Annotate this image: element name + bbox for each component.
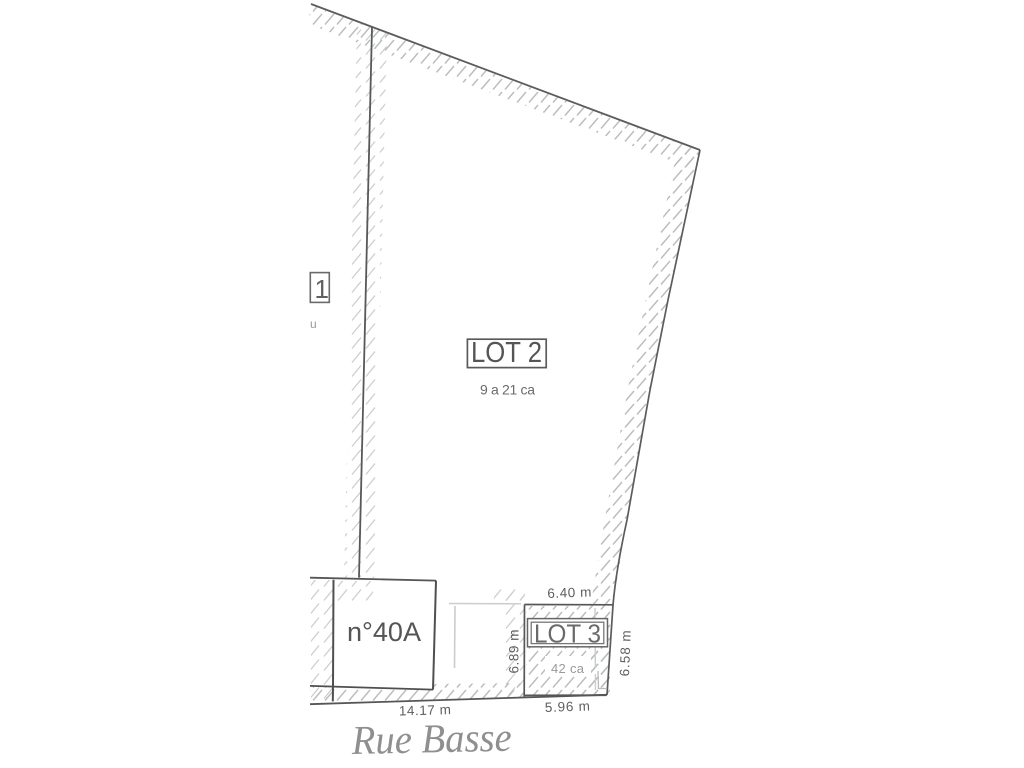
- svg-text:6.40 m: 6.40 m: [547, 584, 591, 601]
- svg-text:LOT 3: LOT 3: [534, 619, 601, 649]
- svg-text:u: u: [310, 317, 317, 331]
- svg-text:n°40A: n°40A: [347, 617, 421, 647]
- svg-text:Rue Basse: Rue Basse: [350, 714, 512, 763]
- svg-text:42 ca: 42 ca: [551, 661, 585, 676]
- svg-text:6.89 m: 6.89 m: [507, 630, 522, 674]
- svg-text:5.96 m: 5.96 m: [545, 698, 590, 715]
- svg-text:1: 1: [315, 274, 329, 304]
- svg-text:6.58 m: 6.58 m: [617, 630, 634, 676]
- svg-text:9 a 21 ca: 9 a 21 ca: [480, 382, 535, 398]
- svg-text:LOT 2: LOT 2: [471, 337, 542, 369]
